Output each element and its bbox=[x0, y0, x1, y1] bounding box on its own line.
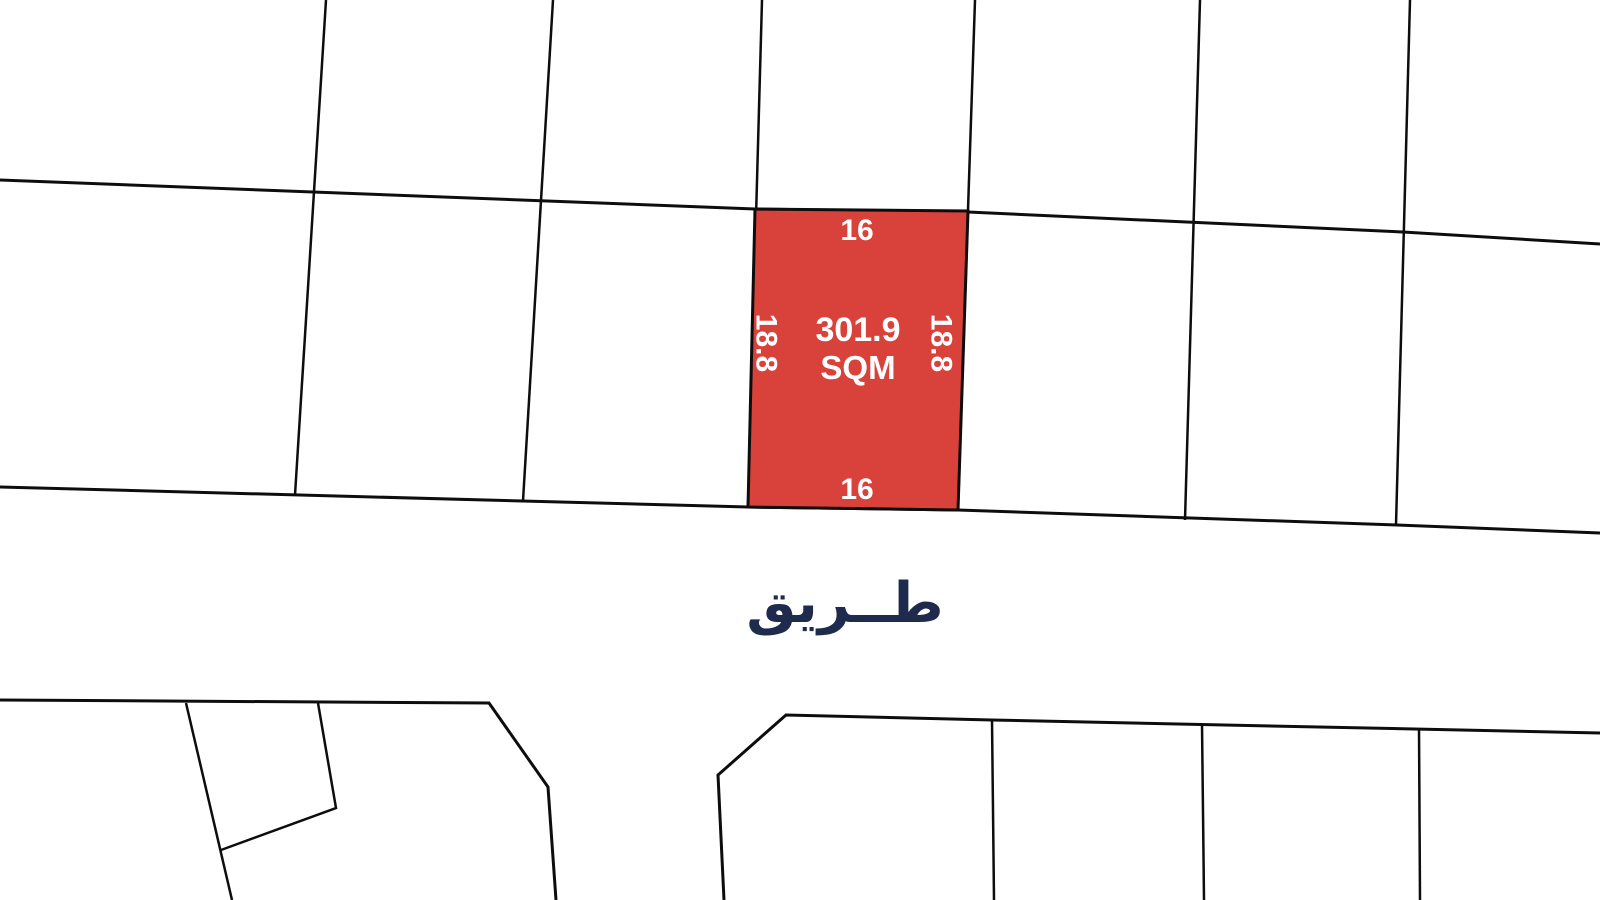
dimension-top-label: 16 bbox=[840, 214, 873, 247]
parcel-divider-line bbox=[1419, 728, 1420, 900]
road-name-label: طــريق bbox=[746, 571, 943, 636]
plot-map-canvas: 16 16 18.8 18.8 301.9 SQM طــريق bbox=[0, 0, 1600, 900]
land-plot-map: 16 16 18.8 18.8 301.9 SQM طــريق bbox=[0, 0, 1600, 900]
dimension-bottom-label: 16 bbox=[840, 473, 873, 506]
dimension-right-label: 18.8 bbox=[925, 314, 958, 372]
plot-area-unit: SQM bbox=[820, 349, 895, 386]
plot-area-value: 301.9 bbox=[815, 311, 900, 349]
dimension-left-label: 18.8 bbox=[750, 314, 783, 372]
